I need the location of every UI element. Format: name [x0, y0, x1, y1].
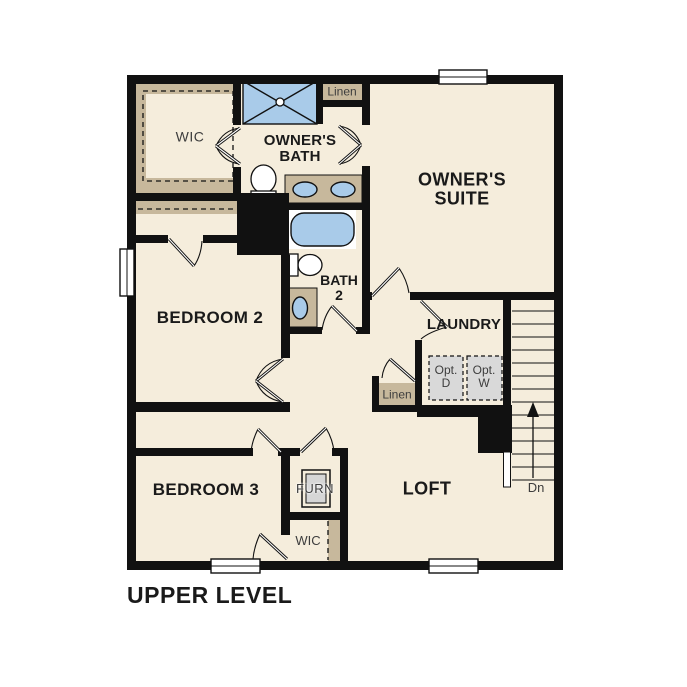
- room-label-line: BATH: [264, 149, 336, 165]
- room-label-line: D: [435, 377, 458, 390]
- wall: [127, 193, 241, 201]
- room-label-line: Opt.: [435, 364, 458, 377]
- stairs-down-label: Dn: [528, 481, 545, 495]
- toilet-icon: [289, 254, 322, 276]
- room-label-line: SUITE: [418, 190, 506, 209]
- wall: [362, 84, 370, 125]
- wall: [281, 456, 290, 517]
- room-label-laundry: LAUNDRY: [427, 317, 501, 333]
- wall: [127, 235, 168, 243]
- wall: [362, 166, 370, 333]
- room-label-line: OWNER'S: [418, 171, 506, 190]
- floor-plan-page: WIC OWNER'S BATH Linen OWNER'S SUITE BED…: [0, 0, 687, 687]
- room-label-wic-lower: WIC: [295, 534, 320, 548]
- sink-icon: [293, 297, 308, 319]
- wall: [322, 100, 363, 107]
- window: [211, 559, 260, 573]
- bathtub-icon: [288, 210, 356, 249]
- bedroom2-closet-shelf: [136, 201, 237, 214]
- wall: [281, 512, 348, 520]
- wall: [554, 75, 563, 570]
- room-label-line: BATH: [320, 273, 358, 288]
- label-optional-dryer: Opt. D: [435, 364, 458, 390]
- wall: [233, 84, 241, 125]
- wall-chase: [478, 410, 512, 453]
- room-label-loft: LOFT: [403, 479, 452, 498]
- window: [429, 559, 478, 573]
- floor-plan-drawing: [0, 0, 687, 687]
- wall: [372, 405, 422, 412]
- sink-icon: [293, 182, 317, 197]
- room-label-furnace: FURN: [296, 482, 334, 496]
- room-label-bath2: BATH 2: [320, 273, 358, 303]
- wall: [415, 340, 422, 378]
- wall: [285, 203, 362, 210]
- wall: [127, 75, 563, 84]
- label-optional-washer: Opt. W: [473, 364, 496, 390]
- wall-chase: [237, 193, 289, 255]
- window: [120, 249, 134, 296]
- room-label-line: 2: [320, 288, 358, 303]
- sink-icon: [331, 182, 355, 197]
- room-label-linen-top: Linen: [327, 86, 356, 99]
- wall: [203, 235, 241, 243]
- wall: [281, 520, 290, 535]
- wall: [503, 292, 511, 420]
- wall: [127, 402, 290, 412]
- room-label-owners-bath: OWNER'S BATH: [264, 133, 336, 165]
- wall: [127, 75, 136, 570]
- page-title: UPPER LEVEL: [127, 582, 292, 609]
- room-label-owners-suite: OWNER'S SUITE: [418, 171, 506, 210]
- wall: [287, 327, 322, 334]
- wall: [410, 292, 554, 300]
- wall: [356, 327, 370, 334]
- stair-railing: [504, 452, 511, 487]
- room-label-bedroom2: BEDROOM 2: [157, 309, 264, 327]
- window: [439, 70, 487, 84]
- wall: [127, 561, 563, 570]
- wall: [281, 255, 290, 358]
- room-label-line: Opt.: [473, 364, 496, 377]
- room-label-wic-upper: WIC: [176, 129, 205, 144]
- wall: [127, 448, 253, 456]
- wall: [278, 448, 300, 456]
- wic-lower-shelf: [328, 520, 340, 561]
- wall: [332, 448, 348, 456]
- wall: [362, 292, 372, 300]
- room-label-bedroom3: BEDROOM 3: [153, 481, 260, 499]
- wall: [340, 456, 348, 561]
- room-label-linen-hall: Linen: [382, 389, 411, 402]
- room-label-line: OWNER'S: [264, 133, 336, 149]
- room-label-line: W: [473, 377, 496, 390]
- wall: [316, 84, 323, 124]
- shower-icon: [243, 81, 317, 124]
